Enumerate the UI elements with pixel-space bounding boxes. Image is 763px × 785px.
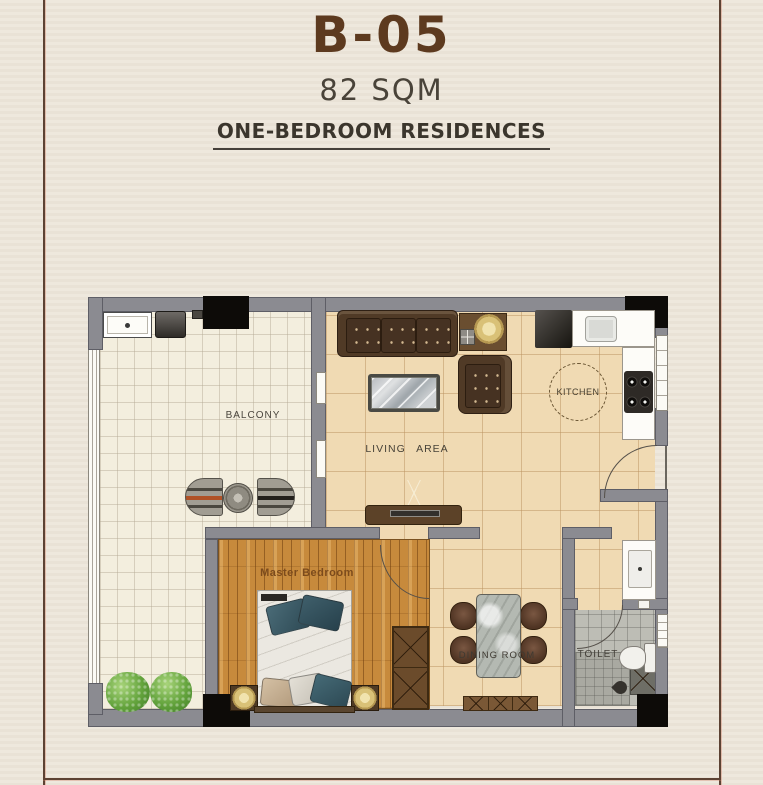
dining-table [476, 594, 521, 678]
wall-mounted-unit [103, 312, 152, 338]
table-lamp [474, 314, 504, 344]
unit-area: 82 SQM [0, 73, 763, 107]
residence-type: ONE-BEDROOM RESIDENCES [213, 119, 550, 150]
small-utility-box [192, 310, 203, 319]
balcony-label: BALCONY [203, 410, 303, 421]
dining-console [463, 696, 538, 711]
column-top-left [203, 296, 249, 329]
balcony-chair-left [185, 478, 223, 516]
sofa-cushion [416, 318, 451, 353]
vanity-nook-stub [562, 527, 612, 539]
floor-plan: KITCHEN LIVING AREA Master Bedroom [88, 297, 668, 727]
sofa-cushion [346, 318, 381, 353]
kitchen-zone-circle: KITCHEN [549, 363, 607, 421]
bed-headboard [254, 706, 355, 713]
toilet-window [657, 614, 668, 648]
console-panel [513, 697, 537, 710]
bedroom-top-wall-left [205, 527, 380, 539]
plant [150, 672, 192, 712]
kitchen-label: KITCHEN [556, 387, 599, 397]
kitchen-window [656, 335, 668, 411]
armchair-cushion [465, 364, 501, 408]
column-bottom-right [637, 694, 668, 727]
stove-cooktop [624, 371, 653, 413]
wall-balcony-divider [311, 297, 326, 539]
ac-condenser-unit [155, 311, 186, 338]
balcony-window-left [88, 347, 100, 686]
plant [106, 672, 150, 712]
console-panel [464, 697, 489, 710]
basin-drain [638, 567, 642, 571]
sofa-cushion [381, 318, 416, 353]
bedroom-left-wall [205, 539, 218, 709]
toilet-paper-holder [638, 600, 650, 609]
bedroom-top-wall-right [428, 527, 480, 539]
vanity-counter [622, 540, 656, 600]
balcony-sliding-panel-2 [316, 440, 326, 478]
wall-right-lower [655, 496, 668, 727]
wardrobe-panel [394, 628, 427, 668]
wall-left-lower [88, 683, 103, 715]
tv-screen [390, 510, 440, 517]
unit-knob [125, 323, 130, 328]
header: B-05 82 SQM ONE-BEDROOM RESIDENCES [0, 0, 763, 150]
coffee-table-glass [371, 377, 437, 409]
balcony-sliding-panel-1 [316, 372, 326, 404]
page-border-bottom [43, 778, 721, 780]
nightstand-right [351, 685, 379, 711]
coffee-table [368, 374, 440, 412]
dining-room-label: DINING ROOM [447, 650, 547, 661]
tv-signal-lines [391, 480, 437, 506]
wardrobe-panel [394, 668, 427, 708]
wall-left-upper [88, 297, 103, 350]
toilet-label: TOILET [560, 649, 636, 660]
tv-console [365, 505, 462, 525]
wardrobe [392, 626, 429, 710]
vanity-basin [628, 550, 652, 588]
kitchen-sink [585, 316, 617, 342]
dining-chair [520, 602, 547, 630]
refrigerator [535, 310, 572, 348]
balcony-chair-right [257, 478, 295, 516]
decor-item [460, 329, 475, 345]
master-bedroom-label: Master Bedroom [247, 567, 367, 579]
living-area-label: LIVING AREA [347, 443, 467, 455]
toilet-top-wall-left [562, 598, 578, 610]
armchair [458, 355, 512, 414]
dining-chair [450, 602, 477, 630]
nightstand-lamp [352, 686, 378, 710]
wall-right-mid [655, 408, 668, 446]
bed-headrail-detail [261, 594, 287, 601]
console-panel [489, 697, 514, 710]
balcony-table [223, 483, 253, 513]
unit-title: B-05 [0, 10, 763, 60]
sofa [337, 310, 458, 357]
toilet-left-wall [562, 527, 575, 727]
